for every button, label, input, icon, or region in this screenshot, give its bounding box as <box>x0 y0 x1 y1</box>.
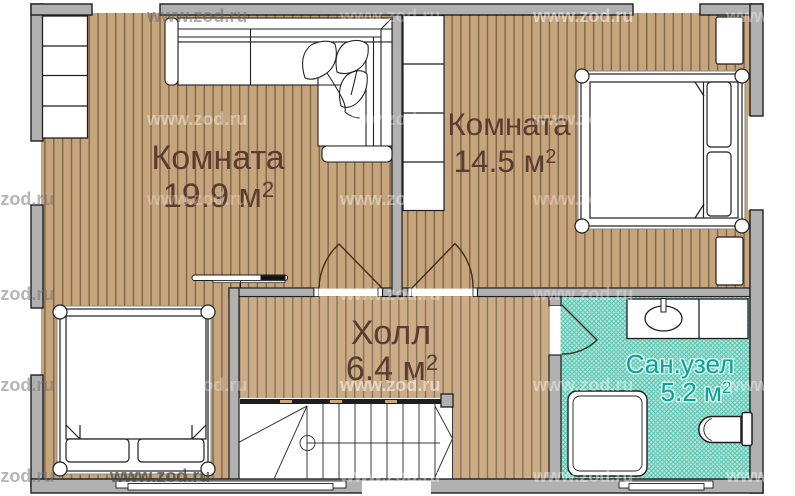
svg-text:www.zod.ru: www.zod.ru <box>339 109 440 129</box>
svg-text:www.zod.ru: www.zod.ru <box>339 189 440 209</box>
svg-text:www.zod.ru: www.zod.ru <box>532 284 633 304</box>
svg-text:www.zod.ru: www.zod.ru <box>0 189 54 209</box>
svg-text:www.zod.ru: www.zod.ru <box>532 375 633 395</box>
svg-text:5.2 м2: 5.2 м2 <box>661 377 732 407</box>
svg-text:www.zod.ru: www.zod.ru <box>725 466 795 486</box>
svg-text:www.zod.ru: www.zod.ru <box>0 375 54 395</box>
svg-text:Холл: Холл <box>351 314 431 352</box>
svg-text:www.zod.ru: www.zod.ru <box>532 109 633 129</box>
svg-text:www.zod.ru: www.zod.ru <box>146 375 247 395</box>
svg-text:www.zod.ru: www.zod.ru <box>725 6 795 26</box>
svg-text:14.5 м2: 14.5 м2 <box>454 143 557 179</box>
svg-text:www.zod.ru: www.zod.ru <box>0 466 54 486</box>
svg-text:www.zod.ru: www.zod.ru <box>109 466 210 486</box>
svg-text:www.zod.ru: www.zod.ru <box>339 6 440 26</box>
svg-text:www.zod.ru: www.zod.ru <box>339 466 440 486</box>
svg-text:Комната: Комната <box>151 139 284 177</box>
svg-text:www.zod.ru: www.zod.ru <box>339 284 440 304</box>
svg-text:www.zod.ru: www.zod.ru <box>146 189 247 209</box>
svg-text:Сан.узел: Сан.узел <box>626 349 735 379</box>
svg-text:www.zod.ru: www.zod.ru <box>0 284 54 304</box>
svg-text:www.zod.ru: www.zod.ru <box>725 375 795 395</box>
svg-text:www.zod.ru: www.zod.ru <box>339 375 440 395</box>
svg-text:www.zod.ru: www.zod.ru <box>532 6 633 26</box>
svg-text:www.zod.ru: www.zod.ru <box>146 6 247 26</box>
svg-text:www.zod.ru: www.zod.ru <box>146 109 247 129</box>
svg-text:www.zod.ru: www.zod.ru <box>532 189 633 209</box>
svg-text:www.zod.ru: www.zod.ru <box>532 466 633 486</box>
